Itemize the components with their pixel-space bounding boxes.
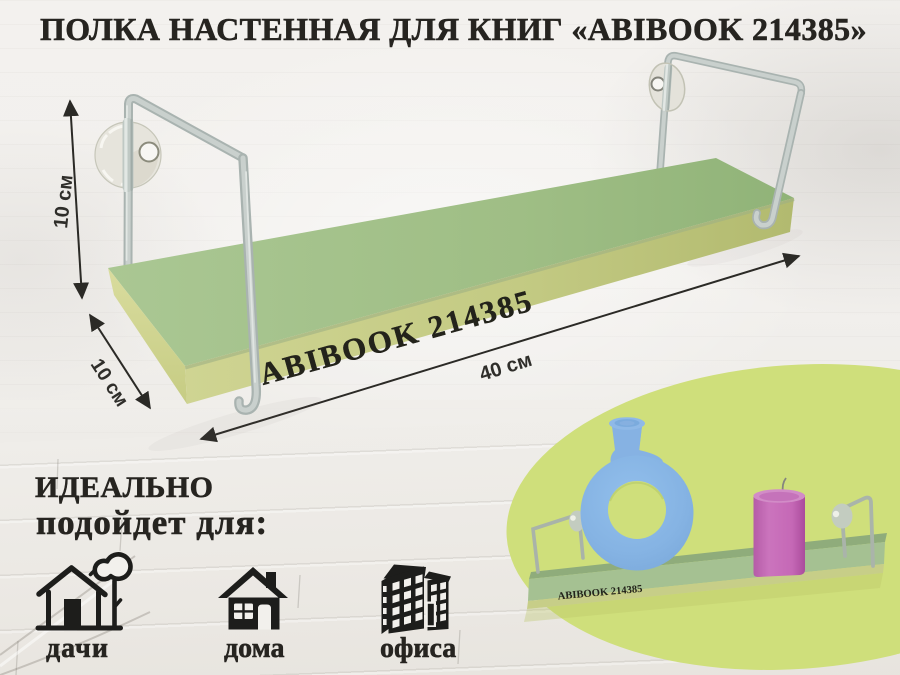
svg-text:10 см: 10 см: [50, 174, 77, 230]
svg-text:10 см: 10 см: [86, 355, 133, 411]
svg-text:40 см: 40 см: [477, 349, 535, 386]
